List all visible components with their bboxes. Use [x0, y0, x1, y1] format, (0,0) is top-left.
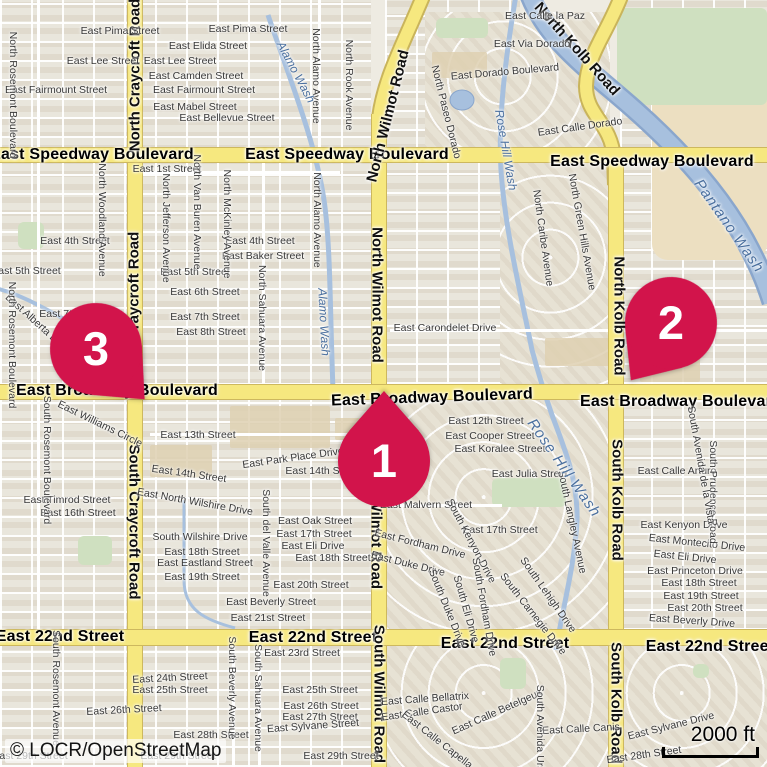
street-label: East Eli Drive	[281, 540, 344, 552]
major-road-label: East Speedway Boulevard	[245, 146, 449, 164]
street-label: East Princeton Drive	[647, 565, 743, 577]
street-label: East Via Dorado	[494, 38, 570, 50]
street-label: East Bellevue Street	[179, 112, 274, 124]
street-label: North Sahuara Avenue	[256, 265, 268, 371]
pond	[450, 90, 474, 110]
street-label: East Cooper Street	[445, 430, 534, 442]
major-road-label: North Craycroft Road	[127, 0, 144, 151]
major-road-label: East 22nd Street	[249, 629, 378, 647]
street-label: South Rosemont Avenue	[50, 630, 62, 746]
street-label: East 12th Street	[448, 415, 523, 427]
pin-number: 1	[314, 436, 454, 486]
street-label: East 23rd Street	[264, 647, 340, 659]
major-road-label: South Kolb Road	[608, 642, 625, 764]
major-road-label: North Wilmot Road	[369, 227, 386, 363]
map-pin-3[interactable]: 3	[26, 287, 166, 427]
street-label: East 7th Street	[170, 311, 239, 323]
street-label: South Beverly Avenue	[226, 636, 238, 739]
street-label: North Van Buren Avenue	[191, 154, 203, 269]
street-label: East Pima Street	[81, 25, 160, 37]
street-label: South Avenida Ursa	[534, 685, 546, 767]
street-label: East Pima Street	[209, 23, 288, 35]
street-label: North Rook Avenue	[343, 40, 355, 131]
street-label: East Baker Street	[222, 250, 304, 262]
street-label: East Eastland Street	[157, 557, 253, 569]
street-label: East 4th Street	[225, 235, 294, 247]
street-label: East 18th Street	[295, 552, 370, 564]
street-label: East 20th Street	[667, 602, 742, 614]
major-road-label: South Craycroft Road	[126, 444, 143, 599]
street-label: North Rosemont Boulevard	[7, 32, 19, 159]
street-label: East Timrod Street	[24, 494, 111, 506]
street-label: East Koralee Street	[454, 443, 545, 455]
map-canvas[interactable]: East Speedway BoulevardEast Speedway Bou…	[0, 0, 767, 767]
street-label: East 5th Street	[0, 265, 61, 277]
street-label: East 25th Street	[132, 684, 207, 696]
major-road-label: East 22nd Street	[0, 628, 124, 646]
street-label: East 19th Street	[164, 571, 239, 583]
scale-bar-label: 2000 ft	[660, 723, 757, 747]
street-label: East 29th Street	[303, 750, 378, 762]
pin-number: 2	[601, 298, 741, 348]
major-road-label: East Speedway Boulevard	[0, 146, 194, 164]
street-label: East 20th Street	[273, 579, 348, 591]
street-label: East Lee Street	[67, 55, 139, 67]
rose-hill-wash	[500, 0, 577, 650]
street-label: East 19th Street	[663, 590, 738, 602]
map-pin-1[interactable]: 1	[314, 399, 454, 539]
major-road-label: East 22nd Street	[646, 638, 767, 656]
street-label: East Lee Street	[144, 55, 216, 67]
street-label: East 6th Street	[170, 286, 239, 298]
street-label: East Carondelet Drive	[394, 322, 497, 334]
street-label: East Camden Street	[149, 70, 244, 82]
street-label: East Elida Street	[169, 40, 247, 52]
street-label: East 8th Street	[176, 326, 245, 338]
major-road-label: South Kolb Road	[609, 439, 626, 561]
street-label: East Beverly Street	[226, 596, 316, 608]
street-label: East Fairmount Street	[5, 84, 107, 96]
street-label: South Wilshire Drive	[152, 531, 247, 543]
street-label: South del Valle Avenue	[260, 489, 272, 597]
street-label: North Alamo Avenue	[311, 172, 323, 268]
major-road-label: East Speedway Boulevard	[550, 153, 754, 171]
scale-bar: 2000 ft	[660, 723, 757, 758]
street-label: North Alamo Avenue	[310, 28, 322, 124]
street-label: East 13th Street	[160, 429, 235, 441]
street-label: North Jefferson Avenue	[160, 173, 172, 282]
map-attribution: © LOCR/OpenStreetMap	[5, 739, 226, 763]
street-label: East 21st Street	[231, 612, 306, 624]
pin-number: 3	[26, 324, 166, 374]
street-label: East 18th Street	[661, 577, 736, 589]
major-road-label: South Wilmot Road	[371, 625, 388, 763]
street-label: East 25th Street	[282, 684, 357, 696]
street-label: East Calle la Paz	[505, 10, 585, 22]
street-label: North McKinley Avenue	[221, 170, 233, 279]
street-label: South Sahuara Avenue	[252, 644, 264, 752]
scale-bar-rule	[662, 747, 759, 758]
street-label: East Fairmount Street	[153, 84, 255, 96]
map-pin-2[interactable]: 2	[601, 261, 741, 401]
